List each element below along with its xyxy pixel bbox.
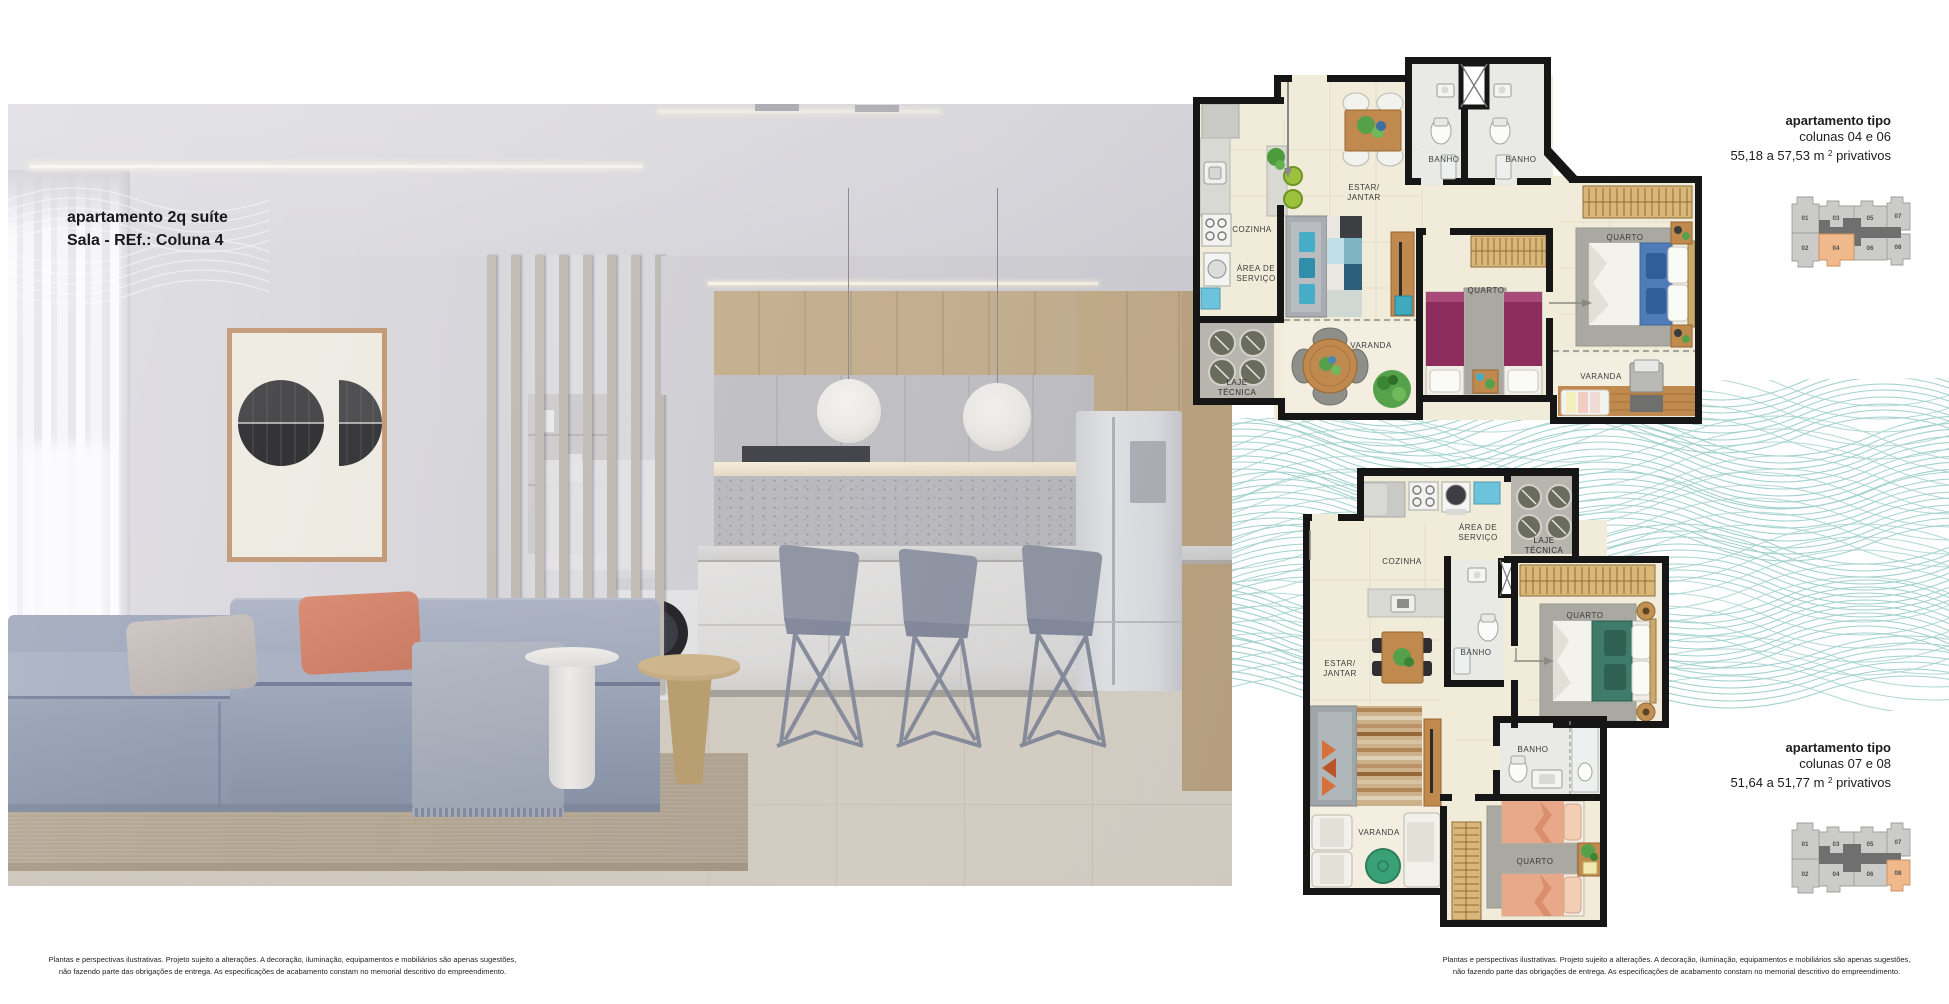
svg-text:SERVIÇO: SERVIÇO xyxy=(1458,533,1497,542)
svg-text:TÉCNICA: TÉCNICA xyxy=(1218,388,1257,397)
svg-text:JANTAR: JANTAR xyxy=(1347,193,1381,202)
svg-text:05: 05 xyxy=(1867,215,1874,222)
svg-text:01: 01 xyxy=(1802,841,1809,848)
svg-text:03: 03 xyxy=(1833,841,1840,848)
svg-text:06: 06 xyxy=(1867,245,1874,252)
svg-text:BANHO: BANHO xyxy=(1506,155,1537,164)
svg-text:08: 08 xyxy=(1895,244,1902,251)
svg-text:05: 05 xyxy=(1867,841,1874,848)
svg-text:QUARTO: QUARTO xyxy=(1468,286,1505,295)
svg-text:TÉCNICA: TÉCNICA xyxy=(1525,546,1564,555)
svg-text:LAJE: LAJE xyxy=(1226,378,1247,387)
svg-text:VARANDA: VARANDA xyxy=(1358,828,1400,837)
svg-text:08: 08 xyxy=(1895,870,1902,877)
svg-text:QUARTO: QUARTO xyxy=(1517,857,1554,866)
svg-text:07: 07 xyxy=(1895,839,1902,846)
svg-text:02: 02 xyxy=(1802,871,1809,878)
svg-text:BANHO: BANHO xyxy=(1461,648,1492,657)
svg-text:COZINHA: COZINHA xyxy=(1382,557,1422,566)
svg-text:ESTAR/: ESTAR/ xyxy=(1348,183,1380,192)
svg-text:ÁREA DE: ÁREA DE xyxy=(1459,523,1497,532)
svg-text:VARANDA: VARANDA xyxy=(1580,372,1622,381)
svg-text:SERVIÇO: SERVIÇO xyxy=(1236,274,1275,283)
svg-text:ESTAR/: ESTAR/ xyxy=(1324,659,1356,668)
svg-text:06: 06 xyxy=(1867,871,1874,878)
svg-text:COZINHA: COZINHA xyxy=(1232,225,1272,234)
svg-text:01: 01 xyxy=(1802,215,1809,222)
svg-text:07: 07 xyxy=(1895,213,1902,220)
svg-text:BANHO: BANHO xyxy=(1518,745,1549,754)
svg-text:04: 04 xyxy=(1833,871,1840,878)
svg-text:BANHO: BANHO xyxy=(1429,155,1460,164)
svg-text:QUARTO: QUARTO xyxy=(1607,233,1644,242)
svg-text:QUARTO: QUARTO xyxy=(1567,611,1604,620)
svg-text:VARANDA: VARANDA xyxy=(1350,341,1392,350)
svg-text:02: 02 xyxy=(1802,245,1809,252)
svg-text:LAJE: LAJE xyxy=(1533,536,1554,545)
svg-text:04: 04 xyxy=(1833,245,1840,252)
svg-text:03: 03 xyxy=(1833,215,1840,222)
svg-text:JANTAR: JANTAR xyxy=(1323,669,1357,678)
svg-text:ÁREA DE: ÁREA DE xyxy=(1237,264,1275,273)
